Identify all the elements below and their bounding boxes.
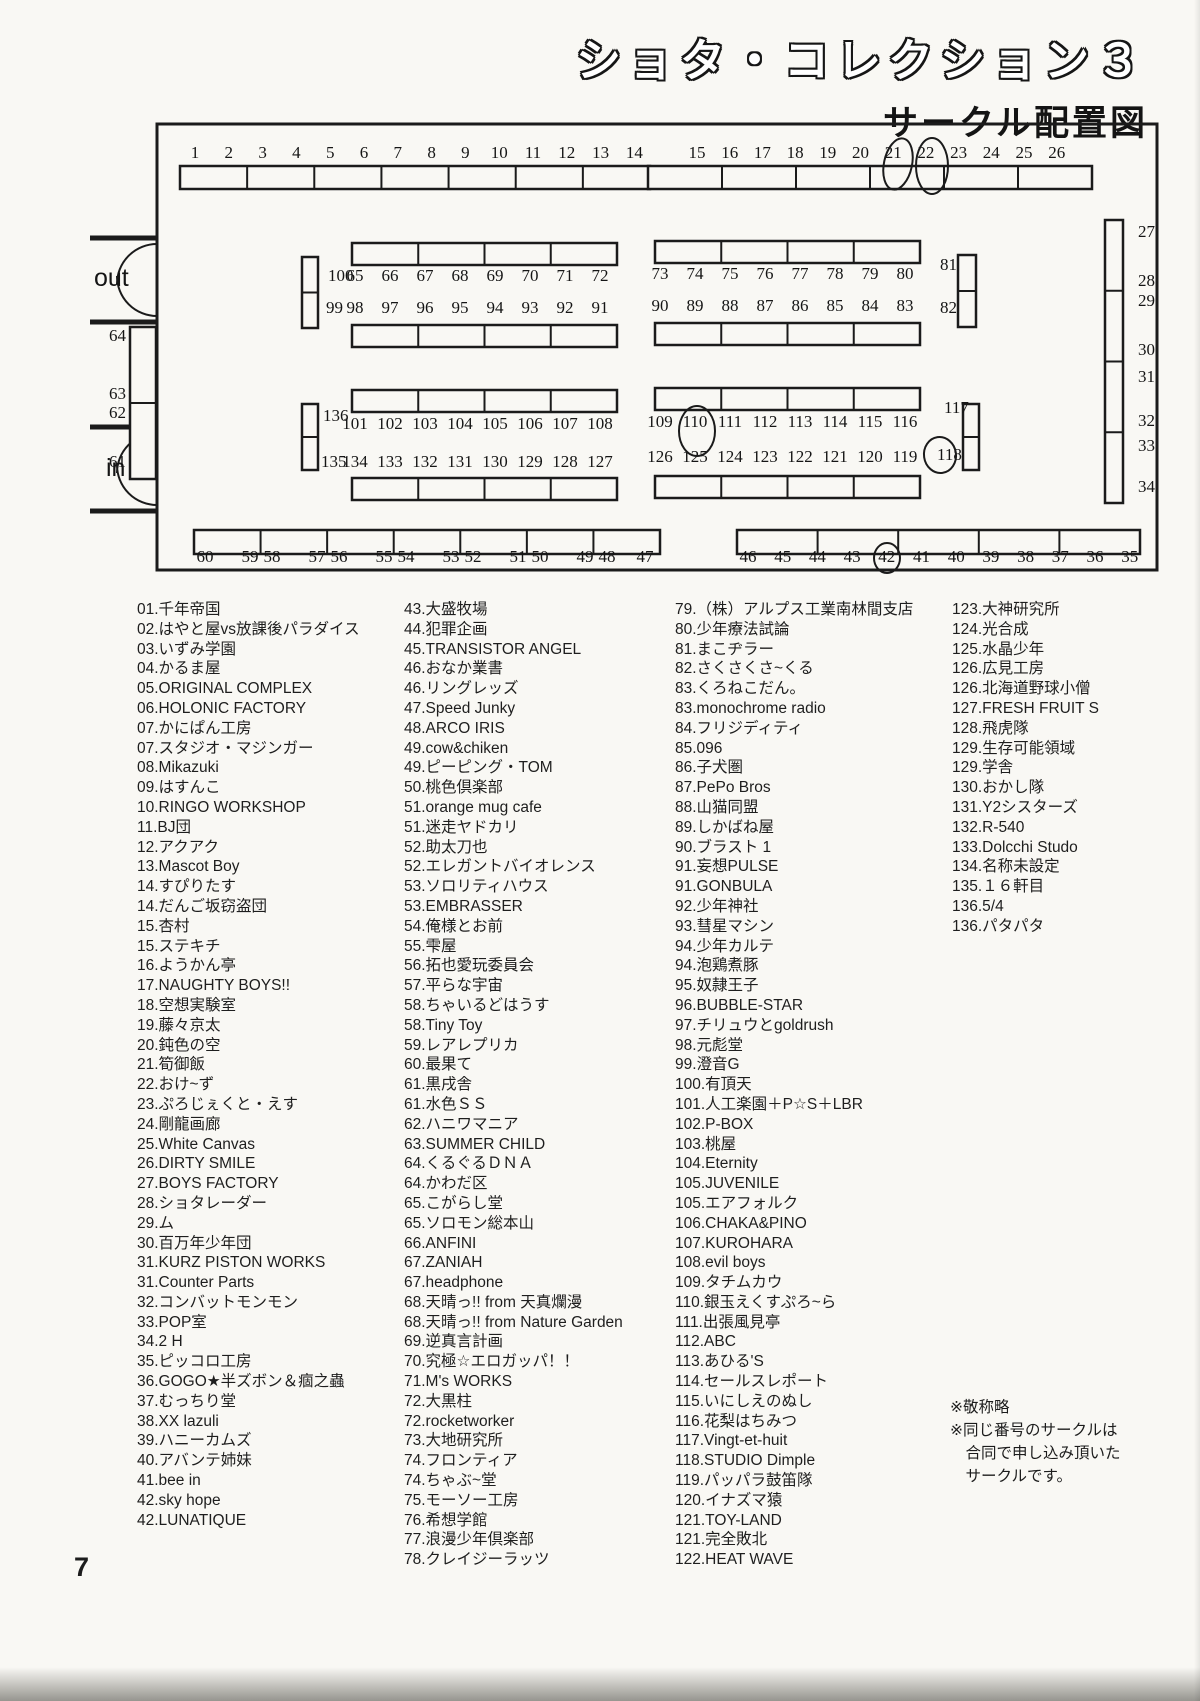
circle-list-entry: 115.いにしえのぬし: [675, 1392, 913, 1412]
booth-number: 118: [937, 445, 962, 464]
booth-number: 3: [258, 143, 267, 162]
booth-number: 124: [717, 447, 743, 466]
booth-number: 13: [592, 143, 609, 162]
circle-list-entry: 123.大神研究所: [952, 600, 1099, 620]
circle-list-entry: 91.GONBULA: [675, 877, 913, 897]
circle-list-entry: 91.妄想PULSE: [675, 857, 913, 877]
booth-number: 73: [652, 264, 669, 283]
booth-number: 7: [394, 143, 403, 162]
circle-list-entry: 74.ちゃぶ~堂: [404, 1471, 623, 1491]
booth-number: 57: [309, 547, 327, 566]
booth-number: 62: [109, 403, 126, 422]
booth-number: 4: [292, 143, 301, 162]
booth-number: 97: [382, 298, 400, 317]
booth-number: 12: [558, 143, 575, 162]
circle-list-entry: 61.黒戌舎: [404, 1075, 623, 1095]
booth-number: 31: [1138, 367, 1155, 386]
circle-list-entry: 64.くるぐるＤＮＡ: [404, 1154, 623, 1174]
circle-list-entry: 101.人工楽園＋P☆S＋LBR: [675, 1095, 913, 1115]
circle-list-entry: 122.HEAT WAVE: [675, 1550, 913, 1570]
booth-number: 28: [1138, 271, 1155, 290]
circle-list-entry: 11.BJ団: [137, 818, 360, 838]
circle-list-entry: 129.学舎: [952, 758, 1099, 778]
booth-number: 136: [323, 406, 349, 425]
circle-list-entry: 85.096: [675, 739, 913, 759]
booth-number: 67: [417, 266, 435, 285]
booth-number: 10: [491, 143, 508, 162]
booth-number: 32: [1138, 411, 1155, 430]
circle-list-entry: 97.チリュウとgoldrush: [675, 1016, 913, 1036]
circle-list-entry: 124.光合成: [952, 620, 1099, 640]
circle-list-entry: 62.ハニワマニア: [404, 1115, 623, 1135]
circle-list-entry: 70.究極☆エロガッパ！！: [404, 1352, 623, 1372]
booth-number: 40: [948, 547, 965, 566]
circle-list-entry: 31.KURZ PISTON WORKS: [137, 1253, 360, 1273]
circle-list-entry: 69.逆真言計画: [404, 1332, 623, 1352]
circle-list-entry: 126.広見工房: [952, 659, 1099, 679]
circle-list-entry: 15.杏村: [137, 917, 360, 937]
footnote-line: ※敬称略: [950, 1396, 1121, 1419]
booth-number: 46: [740, 547, 757, 566]
circle-list-entry: 107.KUROHARA: [675, 1234, 913, 1254]
circle-list-entry: 51.orange mug cafe: [404, 798, 623, 818]
booth-number: 14: [626, 143, 644, 162]
booth-number: 64: [109, 326, 127, 345]
circle-list-entry: 25.White Canvas: [137, 1135, 360, 1155]
booth-number: 110: [683, 412, 708, 431]
circle-list-entry: 49.cow&chiken: [404, 739, 623, 759]
circle-list-entry: 26.DIRTY SMILE: [137, 1154, 360, 1174]
circle-list-entry: 87.PePo Bros: [675, 778, 913, 798]
circle-list-entry: 76.希想学館: [404, 1511, 623, 1531]
booth-number: 116: [893, 412, 918, 431]
booth-number: 34: [1138, 477, 1156, 496]
circle-list-entry: 07.スタジオ・マジンガー: [137, 739, 360, 759]
booth-number: 38: [1017, 547, 1034, 566]
circle-list-entry: 41.bee in: [137, 1471, 360, 1491]
booth-number: 107: [552, 414, 578, 433]
circle-list-entry: 12.アクアク: [137, 838, 360, 858]
circle-list-entry: 49.ピーピング・TOM: [404, 758, 623, 778]
footnote-line: サークルです。: [950, 1465, 1121, 1488]
booth-number: 78: [827, 264, 844, 283]
circle-list-entry: 96.BUBBLE-STAR: [675, 996, 913, 1016]
circle-list-entry: 48.ARCO IRIS: [404, 719, 623, 739]
booth-number: 121: [822, 447, 848, 466]
booth-number: 2: [225, 143, 234, 162]
circle-list-entry: 57.平らな宇宙: [404, 976, 623, 996]
circle-list-entry: 121.完全敗北: [675, 1530, 913, 1550]
booth-number: 82: [940, 298, 957, 317]
booth-number: 44: [809, 547, 827, 566]
circle-list-entry: 134.名称未設定: [952, 857, 1099, 877]
circle-list-entry: 79.（株）アルプス工業南林間支店: [675, 600, 913, 620]
circle-list-entry: 14.すぴりたす: [137, 877, 360, 897]
circle-list-entry: 02.はやと屋vs放課後パラダイス: [137, 620, 360, 640]
handwritten-circles: [679, 136, 958, 573]
booth-number: 112: [753, 412, 778, 431]
booth-number: 108: [587, 414, 613, 433]
circle-list-entry: 39.ハニーカムズ: [137, 1431, 360, 1451]
booth-number: 95: [452, 298, 469, 317]
circle-list-entry: 29.ム: [137, 1214, 360, 1234]
booth-number: 11: [525, 143, 541, 162]
circle-list-entry: 47.Speed Junky: [404, 699, 623, 719]
circle-list-entry: 22.おけ~ず: [137, 1075, 360, 1095]
circle-list-entry: 30.百万年少年団: [137, 1234, 360, 1254]
circle-list-entry: 04.かるま屋: [137, 659, 360, 679]
circle-list-entry: 08.Mikazuki: [137, 758, 360, 778]
circle-list-entry: 72.大黒柱: [404, 1392, 623, 1412]
circle-list-entry: 108.evil boys: [675, 1253, 913, 1273]
circle-list-entry: 32.コンバットモンモン: [137, 1293, 360, 1313]
circle-list-entry: 99.澄音G: [675, 1055, 913, 1075]
booth-number: 127: [587, 452, 613, 471]
booth-number: 68: [452, 266, 469, 285]
booth-number: 15: [689, 143, 706, 162]
circle-list-entry: 06.HOLONIC FACTORY: [137, 699, 360, 719]
booth-number: 129: [517, 452, 543, 471]
booth-number: 74: [687, 264, 705, 283]
booth-number: 122: [787, 447, 813, 466]
booth-number: 18: [787, 143, 804, 162]
circle-list-entry: 35.ピッコロ工房: [137, 1352, 360, 1372]
page-title: ショタ・コレクション３: [576, 24, 1148, 89]
footnote-line: ※同じ番号のサークルは: [950, 1419, 1121, 1442]
circle-list-entry: 80.少年療法試論: [675, 620, 913, 640]
booth-number: 19: [819, 143, 836, 162]
page-number: 7: [74, 1552, 89, 1583]
circle-list-entry: 52.助太刀也: [404, 838, 623, 858]
circle-list-entry: 110.銀玉えくすぷろ~ら: [675, 1293, 913, 1313]
circle-list-entry: 135.１６軒目: [952, 877, 1099, 897]
circle-list-entry: 27.BOYS FACTORY: [137, 1174, 360, 1194]
booth-number: 48: [599, 547, 616, 566]
booth-number: 135: [321, 452, 347, 471]
circle-list-entry: 89.しかばね屋: [675, 818, 913, 838]
booth-number: 99: [326, 298, 343, 317]
booth-number: 126: [647, 447, 673, 466]
booth-numbers: 1234567891011121314151617181920212223242…: [94, 143, 1156, 566]
booth-number: 89: [687, 296, 704, 315]
booth-number: 17: [754, 143, 772, 162]
circle-list-entry: 94.泡鶏煮豚: [675, 956, 913, 976]
circle-list-entry: 21.筍御飯: [137, 1055, 360, 1075]
circle-list-entry: 94.少年カルテ: [675, 937, 913, 957]
booth-number: 131: [447, 452, 473, 471]
booth-number: 35: [1121, 547, 1138, 566]
booth-number: 81: [940, 255, 957, 274]
circle-list-entry: 46.おなか業書: [404, 659, 623, 679]
circle-list-entry: 18.空想実験室: [137, 996, 360, 1016]
circle-list-entry: 106.CHAKA&PINO: [675, 1214, 913, 1234]
booth-number: 79: [862, 264, 879, 283]
booth-number: 93: [522, 298, 539, 317]
booth-number: 58: [264, 547, 281, 566]
booth-number: 115: [858, 412, 883, 431]
circle-list-entry: 17.NAUGHTY BOYS!!: [137, 976, 360, 996]
circle-list-entry: 132.R-540: [952, 818, 1099, 838]
circle-list-entry: 67.ZANIAH: [404, 1253, 623, 1273]
booth-number: 111: [718, 412, 742, 431]
booth-number: 71: [557, 266, 574, 285]
booth-number: 100: [328, 266, 354, 285]
circle-list-entry: 72.rocketworker: [404, 1412, 623, 1432]
booth-number: 109: [647, 412, 673, 431]
booth-number: 8: [427, 143, 436, 162]
circle-list-entry: 34.2 H: [137, 1332, 360, 1352]
booth-number: 114: [823, 412, 848, 431]
booth-number: 72: [592, 266, 609, 285]
circle-list-entry: 65.ソロモン総本山: [404, 1214, 623, 1234]
circle-list-column-3: 79.（株）アルプス工業南林間支店80.少年療法試論81.まこヂラー82.さくさ…: [675, 600, 913, 1570]
booth-number: 102: [377, 414, 403, 433]
circle-list-entry: 60.最果て: [404, 1055, 623, 1075]
circle-list-entry: 52.エレガントバイオレンス: [404, 857, 623, 877]
booth-number: 106: [517, 414, 543, 433]
circle-list-entry: 51.迷走ヤドカリ: [404, 818, 623, 838]
circle-list-entry: 31.Counter Parts: [137, 1273, 360, 1293]
circle-list-entry: 58.ちゃいるどはうす: [404, 996, 623, 1016]
circle-list-entry: 37.むっちり堂: [137, 1392, 360, 1412]
circle-list-column-1: 01.千年帝国02.はやと屋vs放課後パラダイス03.いずみ学園04.かるま屋0…: [137, 600, 360, 1530]
circle-list-entry: 45.TRANSISTOR ANGEL: [404, 640, 623, 660]
circle-list-entry: 36.GOGO★半ズボン＆痼之蟲: [137, 1372, 360, 1392]
booth-number: 70: [522, 266, 539, 285]
booth-number: 16: [721, 143, 738, 162]
circle-list-entry: 01.千年帝国: [137, 600, 360, 620]
circle-list-entry: 82.さくさくさ~くる: [675, 659, 913, 679]
booth-number: 63: [109, 384, 126, 403]
circle-list-entry: 125.水晶少年: [952, 640, 1099, 660]
booth-number: 85: [827, 296, 844, 315]
booth-number: 132: [412, 452, 438, 471]
booth-number: 123: [752, 447, 778, 466]
circle-list-entry: 68.天晴っ!! from Nature Garden: [404, 1313, 623, 1333]
booth-number: 94: [487, 298, 505, 317]
booth-number: 66: [382, 266, 399, 285]
circle-list-entry: 119.パッパラ鼓笛隊: [675, 1471, 913, 1491]
booth-number: 24: [983, 143, 1001, 162]
booth-number: 37: [1052, 547, 1070, 566]
booth-number: 43: [844, 547, 861, 566]
circle-list-entry: 14.だんご坂窃盗団: [137, 897, 360, 917]
circle-list-entry: 133.Dolcchi Studo: [952, 838, 1099, 858]
booth-tables: [130, 166, 1140, 554]
booth-number: 76: [757, 264, 774, 283]
booth-table: [737, 530, 1140, 554]
booth-number: in: [106, 454, 125, 482]
scan-edge-shadow-right: [1194, 0, 1200, 1701]
circle-list-entry: 130.おかし隊: [952, 778, 1099, 798]
booth-table: [180, 166, 650, 189]
circle-list-entry: 24.剛龍画廊: [137, 1115, 360, 1135]
circle-list-entry: 46.リングレッズ: [404, 679, 623, 699]
circle-list-column-4: 123.大神研究所124.光合成125.水晶少年126.広見工房126.北海道野…: [952, 600, 1099, 937]
circle-list-entry: 10.RINGO WORKSHOP: [137, 798, 360, 818]
booth-number: 26: [1048, 143, 1065, 162]
booth-number: 128: [552, 452, 578, 471]
circle-list-entry: 129.生存可能領域: [952, 739, 1099, 759]
circle-list-entry: 03.いずみ学園: [137, 640, 360, 660]
booth-number: 120: [857, 447, 883, 466]
floor-map: 1234567891011121314151617181920212223242…: [80, 118, 1165, 588]
circle-list-entry: 95.奴隷王子: [675, 976, 913, 996]
map-border: [157, 124, 1157, 570]
circle-list-entry: 109.タチムカウ: [675, 1273, 913, 1293]
circle-list-entry: 15.ステキチ: [137, 937, 360, 957]
circle-list-entry: 117.Vingt-et-huit: [675, 1431, 913, 1451]
circle-list-entry: 05.ORIGINAL COMPLEX: [137, 679, 360, 699]
footnote-line: 合同で申し込み頂いた: [950, 1442, 1121, 1465]
booth-number: 90: [652, 296, 669, 315]
circle-list-entry: 126.北海道野球小僧: [952, 679, 1099, 699]
circle-list-entry: 120.イナズマ猿: [675, 1491, 913, 1511]
booth-number: 96: [417, 298, 434, 317]
circle-list-entry: 93.彗星マシン: [675, 917, 913, 937]
circle-list-entry: 44.犯罪企画: [404, 620, 623, 640]
booth-number: 119: [893, 447, 918, 466]
circle-list-entry: 98.元彪堂: [675, 1036, 913, 1056]
booth-number: 49: [577, 547, 594, 566]
booth-number: 87: [757, 296, 775, 315]
circle-list-entry: 73.大地研究所: [404, 1431, 623, 1451]
circle-list-entry: 102.P-BOX: [675, 1115, 913, 1135]
circle-list-entry: 118.STUDIO Dimple: [675, 1451, 913, 1471]
booth-number: 41: [913, 547, 930, 566]
circle-list-entry: 71.M's WORKS: [404, 1372, 623, 1392]
circle-list-entry: 105.JUVENILE: [675, 1174, 913, 1194]
circle-list-entry: 42.LUNATIQUE: [137, 1511, 360, 1531]
booth-number: 30: [1138, 340, 1155, 359]
booth-number: 54: [398, 547, 416, 566]
booth-number: 104: [447, 414, 473, 433]
scanned-catalog-page: ショタ・コレクション３ サークル配置図 12345678910111213141…: [0, 0, 1200, 1701]
circle-list-entry: 83.monochrome radio: [675, 699, 913, 719]
circle-list-entry: 81.まこヂラー: [675, 640, 913, 660]
circle-list-entry: 74.フロンティア: [404, 1451, 623, 1471]
booth-number: 98: [347, 298, 364, 317]
circle-list-entry: 19.藤々京太: [137, 1016, 360, 1036]
circle-list-entry: 127.FRESH FRUIT S: [952, 699, 1099, 719]
scan-edge-shadow: [0, 1667, 1200, 1701]
booth-number: 33: [1138, 436, 1155, 455]
booth-number: 92: [557, 298, 574, 317]
booth-number: 29: [1138, 291, 1155, 310]
booth-number: 1: [191, 143, 200, 162]
booth-number: 83: [897, 296, 914, 315]
circle-list-entry: 113.あひる'S: [675, 1352, 913, 1372]
circle-list-entry: 63.SUMMER CHILD: [404, 1135, 623, 1155]
circle-list-entry: 100.有頂天: [675, 1075, 913, 1095]
booth-number: 59: [242, 547, 259, 566]
circle-list-entry: 50.桃色倶楽部: [404, 778, 623, 798]
circle-list-entry: 75.モーソー工房: [404, 1491, 623, 1511]
booth-number: 9: [461, 143, 470, 162]
circle-list-entry: 105.エアフォルク: [675, 1194, 913, 1214]
circle-list-entry: 38.XX lazuli: [137, 1412, 360, 1432]
circle-list-entry: 61.水色ＳＳ: [404, 1095, 623, 1115]
circle-list-entry: 42.sky hope: [137, 1491, 360, 1511]
booth-number: 88: [722, 296, 739, 315]
booth-number: 77: [792, 264, 810, 283]
booth-number: 60: [197, 547, 214, 566]
booth-number: 6: [360, 143, 369, 162]
circle-list-entry: 128.飛虎隊: [952, 719, 1099, 739]
booth-number: 56: [331, 547, 348, 566]
booth-number: 86: [792, 296, 809, 315]
booth-number: 80: [897, 264, 914, 283]
booth-number: 91: [592, 298, 609, 317]
circle-list-column-2: 43.大盛牧場44.犯罪企画45.TRANSISTOR ANGEL46.おなか業…: [404, 600, 623, 1570]
circle-list-entry: 88.山猫同盟: [675, 798, 913, 818]
booth-number: 103: [412, 414, 438, 433]
booth-number: 51: [510, 547, 527, 566]
footnote: ※敬称略※同じ番号のサークルは 合同で申し込み頂いた サークルです。: [950, 1396, 1121, 1488]
circle-list-entry: 07.かにぱん工房: [137, 719, 360, 739]
circle-list-entry: 09.はすんこ: [137, 778, 360, 798]
circle-list-entry: 121.TOY-LAND: [675, 1511, 913, 1531]
circle-list-entry: 92.少年神社: [675, 897, 913, 917]
circle-list-entry: 86.子犬圏: [675, 758, 913, 778]
booth-number: 133: [377, 452, 403, 471]
circle-list-entry: 114.セールスレポート: [675, 1372, 913, 1392]
circle-list-entry: 55.雫屋: [404, 937, 623, 957]
circle-list-entry: 77.浪漫少年倶楽部: [404, 1530, 623, 1550]
booth-number: 113: [788, 412, 813, 431]
booth-number: 39: [982, 547, 999, 566]
circle-list-entry: 68.天晴っ!! from 天真爛漫: [404, 1293, 623, 1313]
circle-list-entry: 20.鈍色の空: [137, 1036, 360, 1056]
booth-number: 23: [950, 143, 967, 162]
booth-number: 50: [532, 547, 549, 566]
circle-list-entry: 111.出張風見亭: [675, 1313, 913, 1333]
circle-list-entry: 104.Eternity: [675, 1154, 913, 1174]
circle-list-entry: 16.ようかん亭: [137, 956, 360, 976]
circle-list-entry: 53.EMBRASSER: [404, 897, 623, 917]
circle-list-entry: 103.桃屋: [675, 1135, 913, 1155]
circle-list-entry: 53.ソロリティハウス: [404, 877, 623, 897]
circle-list-entry: 116.花梨はちみつ: [675, 1412, 913, 1432]
circle-list-entry: 90.ブラスト 1: [675, 838, 913, 858]
booth-number: 45: [774, 547, 791, 566]
booth-number: 27: [1138, 222, 1156, 241]
circle-list-entry: 67.headphone: [404, 1273, 623, 1293]
circle-list-entry: 112.ABC: [675, 1332, 913, 1352]
circle-list-entry: 136.5/4: [952, 897, 1099, 917]
booth-number: 69: [487, 266, 504, 285]
booth-number: 84: [862, 296, 880, 315]
circle-list-entry: 83.くろねこだん。: [675, 679, 913, 699]
circle-list-entry: 43.大盛牧場: [404, 600, 623, 620]
booth-number: 105: [482, 414, 508, 433]
circle-list-entry: 136.パタパタ: [952, 917, 1099, 937]
circle-list-entry: 54.俺様とお前: [404, 917, 623, 937]
circle-list-entry: 56.拓也愛玩委員会: [404, 956, 623, 976]
circle-list-entry: 131.Y2シスターズ: [952, 798, 1099, 818]
booth-number: 25: [1016, 143, 1033, 162]
booth-number: 36: [1087, 547, 1104, 566]
booth-number: 5: [326, 143, 335, 162]
booth-number: 117: [944, 398, 969, 417]
booth-number: 53: [443, 547, 460, 566]
circle-list-entry: 58.Tiny Toy: [404, 1016, 623, 1036]
booth-number: 55: [376, 547, 393, 566]
circle-list-entry: 66.ANFINI: [404, 1234, 623, 1254]
circle-list-entry: 33.POP室: [137, 1313, 360, 1333]
circle-list-entry: 13.Mascot Boy: [137, 857, 360, 877]
booth-number: 47: [637, 547, 655, 566]
